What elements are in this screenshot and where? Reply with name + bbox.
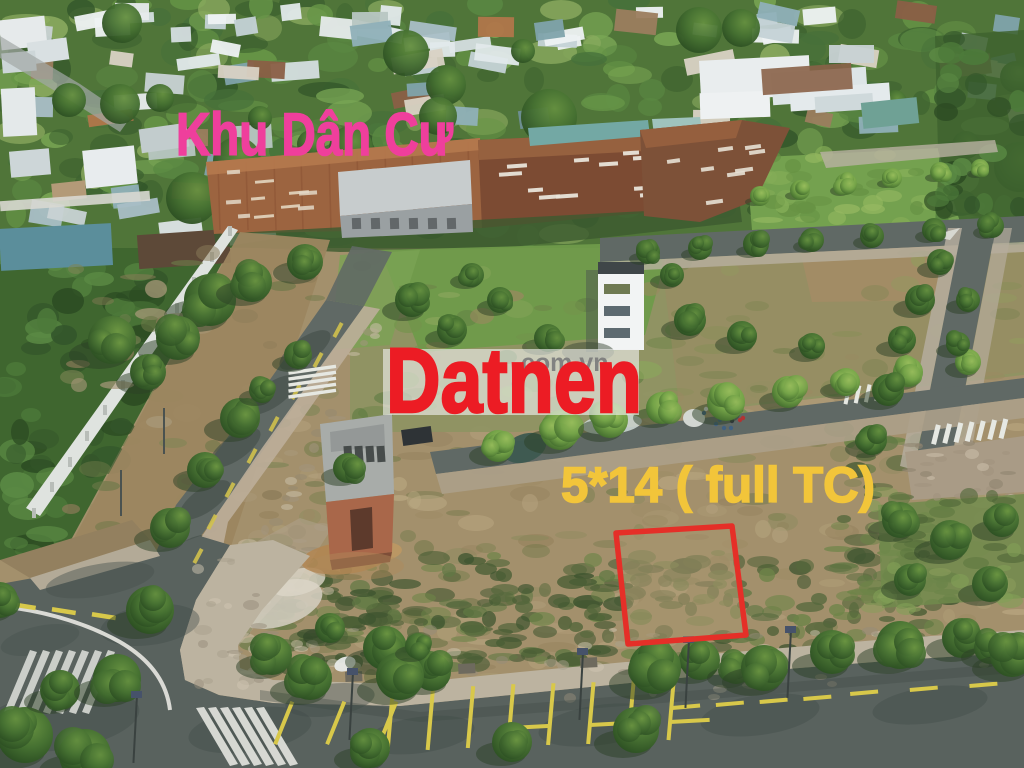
svg-text:Khu Dân Cư: Khu Dân Cư [176,101,453,168]
svg-text:5*14 ( full TC): 5*14 ( full TC) [561,457,875,513]
svg-text:Datnen: Datnen [386,330,642,432]
